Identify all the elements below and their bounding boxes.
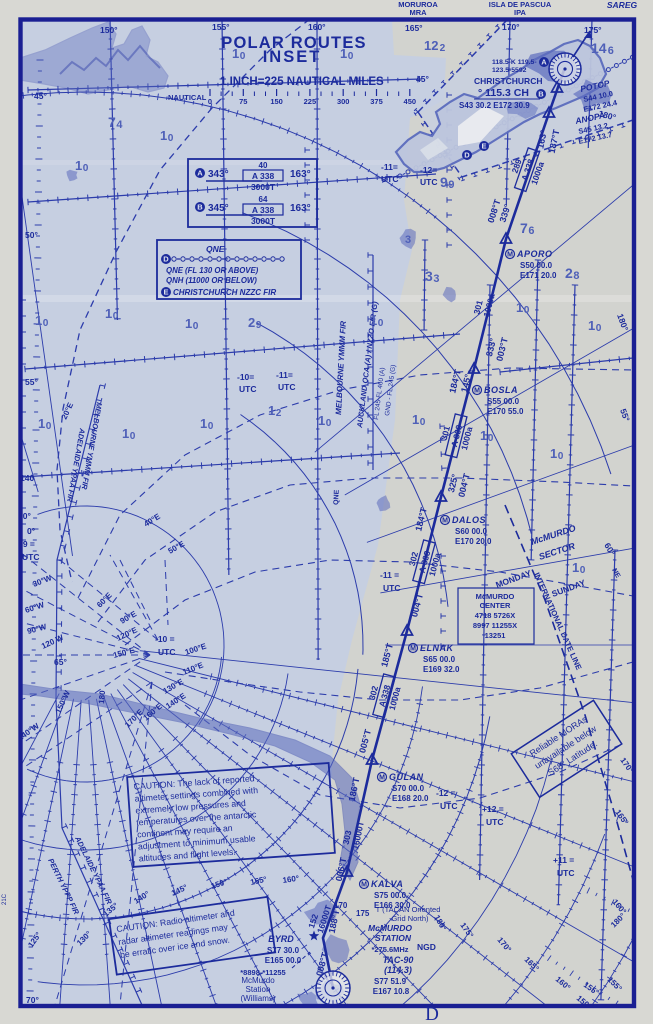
svg-text:175°: 175°	[584, 25, 602, 35]
svg-text:64: 64	[259, 195, 268, 204]
svg-text:225: 225	[304, 97, 317, 106]
svg-text:UTC: UTC	[557, 868, 574, 878]
svg-text:+12 =: +12 =	[482, 804, 504, 814]
svg-text:163°: 163°	[290, 203, 311, 214]
svg-text:E171 20.0: E171 20.0	[520, 271, 557, 280]
svg-text:DALOS: DALOS	[452, 515, 486, 525]
svg-text:45°: 45°	[416, 74, 429, 84]
svg-text:E167 10.8: E167 10.8	[373, 987, 410, 996]
svg-text:S77 51.9: S77 51.9	[374, 977, 407, 986]
svg-text:0°: 0°	[27, 526, 36, 536]
svg-text:B: B	[538, 90, 544, 99]
svg-text:1: 1	[550, 446, 557, 461]
svg-text:0: 0	[113, 311, 119, 322]
svg-text:75: 75	[239, 97, 247, 106]
svg-text:1: 1	[200, 416, 207, 431]
svg-text:45°: 45°	[34, 91, 47, 101]
svg-text:3000T: 3000T	[251, 182, 276, 192]
svg-text:9: 9	[448, 179, 454, 191]
svg-text:A 338: A 338	[252, 171, 275, 181]
svg-text:1: 1	[268, 403, 275, 418]
svg-text:0: 0	[83, 163, 89, 174]
svg-text:0: 0	[208, 97, 212, 106]
svg-text:S55 00.0: S55 00.0	[487, 397, 520, 406]
svg-text:-10=: -10=	[237, 372, 254, 382]
svg-text:STATION: STATION	[375, 933, 412, 943]
svg-text:M: M	[474, 388, 480, 395]
svg-text:E169 32.0: E169 32.0	[423, 665, 460, 674]
svg-text:1: 1	[75, 158, 82, 173]
svg-text:0: 0	[420, 417, 426, 428]
svg-text:0: 0	[43, 318, 49, 329]
svg-text:118.5-K 119.5-: 118.5-K 119.5-	[492, 59, 537, 66]
svg-text:450: 450	[404, 97, 417, 106]
svg-text:3: 3	[425, 268, 433, 284]
svg-text:BYRD: BYRD	[268, 934, 294, 944]
svg-text:E: E	[163, 288, 168, 297]
svg-text:160°: 160°	[308, 22, 326, 32]
svg-text:UTC: UTC	[158, 647, 175, 657]
svg-text:M: M	[410, 646, 416, 653]
svg-text:1: 1	[572, 560, 579, 575]
svg-text:(114.3): (114.3)	[384, 965, 412, 975]
svg-text:0: 0	[378, 318, 384, 329]
svg-text:1: 1	[480, 428, 487, 443]
svg-text:14: 14	[591, 40, 607, 56]
svg-text:QNE: QNE	[206, 244, 225, 254]
svg-text:M: M	[507, 252, 513, 259]
svg-text:S77 30.0: S77 30.0	[267, 946, 300, 955]
svg-text:UTC: UTC	[383, 583, 400, 593]
svg-text:T (TACAN Oriented: T (TACAN Oriented	[376, 905, 441, 914]
svg-text:M: M	[442, 518, 448, 525]
svg-text:9: 9	[256, 320, 262, 331]
svg-text:65°: 65°	[54, 657, 67, 667]
svg-text:13251: 13251	[485, 631, 506, 640]
svg-text:QNH (11000 OR BELOW): QNH (11000 OR BELOW)	[166, 276, 257, 285]
svg-text:UTC: UTC	[278, 382, 295, 392]
svg-text:E170 55.0: E170 55.0	[487, 407, 524, 416]
svg-text:3000T: 3000T	[251, 216, 276, 226]
svg-text:0: 0	[240, 51, 246, 62]
svg-text:1: 1	[35, 313, 42, 328]
svg-text:-12 =: -12 =	[436, 788, 456, 798]
svg-text:QNE (FL 130 OR ABOVE): QNE (FL 130 OR ABOVE)	[166, 266, 259, 275]
svg-text:0: 0	[488, 433, 494, 444]
svg-text:0: 0	[348, 51, 354, 62]
svg-text:163°: 163°	[290, 169, 311, 180]
svg-text:S70 00.0: S70 00.0	[392, 784, 425, 793]
svg-text:E165 00.0: E165 00.0	[265, 956, 302, 965]
svg-text:1: 1	[370, 313, 377, 328]
svg-text:A: A	[197, 169, 203, 178]
svg-text:1: 1	[412, 412, 419, 427]
svg-text:1: 1	[185, 316, 192, 331]
svg-text:APORO: APORO	[516, 249, 553, 259]
svg-text:UTC: UTC	[22, 552, 39, 562]
svg-text:MRA: MRA	[409, 8, 427, 17]
svg-text:CHRISTCHURCH NZZC FIR: CHRISTCHURCH NZZC FIR	[173, 288, 276, 297]
svg-text:170°: 170°	[502, 22, 520, 32]
svg-text:180: 180	[97, 690, 107, 705]
svg-text:1: 1	[516, 300, 523, 315]
svg-text:A: A	[541, 58, 547, 67]
svg-text:70°: 70°	[26, 995, 39, 1005]
svg-text:McMURDO: McMURDO	[368, 923, 412, 933]
svg-text:55°: 55°	[25, 377, 38, 387]
svg-text:BOSLA: BOSLA	[484, 385, 518, 395]
svg-text:1: 1	[588, 318, 595, 333]
svg-text:E168 20.0: E168 20.0	[392, 794, 429, 803]
svg-text:0: 0	[193, 321, 199, 332]
svg-text:McMurdo: McMurdo	[241, 976, 275, 985]
svg-text:345°: 345°	[208, 203, 229, 214]
svg-text:343°: 343°	[208, 169, 229, 180]
svg-text:0: 0	[558, 451, 564, 462]
svg-text:-11=: -11=	[381, 162, 398, 172]
svg-text:NGD: NGD	[417, 942, 436, 952]
svg-text:-11=: -11=	[276, 370, 293, 380]
svg-text:175: 175	[356, 909, 370, 918]
svg-text:3: 3	[405, 234, 411, 246]
svg-text:4: 4	[116, 119, 122, 131]
svg-text:-12=: -12=	[420, 165, 437, 175]
svg-text:1: 1	[105, 306, 112, 321]
svg-text:0: 0	[326, 418, 332, 429]
svg-text:S65 00.0: S65 00.0	[423, 655, 456, 664]
svg-text:1 INCH=225 NAUTICAL MILES: 1 INCH=225 NAUTICAL MILES	[220, 76, 384, 88]
svg-text:1: 1	[318, 413, 325, 428]
svg-text:3: 3	[433, 273, 439, 285]
svg-text:7: 7	[520, 220, 528, 236]
svg-text:Station: Station	[246, 985, 271, 994]
svg-text:INSET: INSET	[263, 48, 322, 66]
svg-text:UTC: UTC	[381, 174, 398, 184]
svg-text:UTC: UTC	[486, 817, 503, 827]
svg-text:155°: 155°	[212, 22, 230, 32]
svg-text:*275.6MHz: *275.6MHz	[371, 945, 408, 954]
svg-text:KALVA: KALVA	[371, 879, 403, 889]
svg-text:150: 150	[270, 97, 283, 106]
svg-text:S60 00.0: S60 00.0	[455, 527, 488, 536]
svg-text:375: 375	[370, 97, 383, 106]
svg-text:170: 170	[334, 901, 348, 910]
svg-text:B: B	[197, 203, 203, 212]
svg-text:0: 0	[46, 421, 52, 432]
svg-text:+11 =: +11 =	[553, 855, 574, 865]
svg-text:0: 0	[168, 133, 174, 144]
svg-text:CHRISTCHURCH: CHRISTCHURCH	[474, 76, 542, 86]
svg-text:1: 1	[38, 416, 45, 431]
svg-text:SAREG: SAREG	[607, 0, 638, 10]
svg-text:UTC: UTC	[239, 384, 256, 394]
svg-text:7: 7	[108, 114, 116, 130]
svg-text:S75 00.0: S75 00.0	[374, 891, 407, 900]
svg-text:UTC: UTC	[440, 801, 457, 811]
svg-text:4718 5726X: 4718 5726X	[475, 611, 515, 620]
svg-text:D: D	[464, 151, 470, 160]
svg-text:40: 40	[259, 161, 268, 170]
svg-text:M: M	[361, 882, 367, 889]
svg-text:1: 1	[122, 426, 129, 441]
svg-text:1: 1	[160, 128, 167, 143]
svg-text:0: 0	[524, 305, 530, 316]
svg-text:0: 0	[580, 565, 586, 576]
svg-text:6: 6	[608, 45, 614, 57]
svg-text:123.5-5592: 123.5-5592	[492, 67, 527, 74]
svg-text:165°: 165°	[405, 23, 423, 33]
svg-text:2: 2	[565, 265, 573, 281]
svg-text:S43 30.2 E172 30.9: S43 30.2 E172 30.9	[459, 101, 530, 110]
svg-text:150°: 150°	[100, 25, 118, 35]
svg-text:McMURDO: McMURDO	[476, 592, 515, 601]
svg-text:-10 =: -10 =	[155, 634, 175, 644]
svg-text:2: 2	[248, 315, 255, 330]
svg-text:6: 6	[528, 225, 534, 237]
svg-text:300: 300	[337, 97, 350, 106]
svg-text:0: 0	[130, 431, 136, 442]
svg-text:-11 =: -11 =	[380, 570, 399, 580]
svg-text:TAC-90: TAC-90	[383, 955, 414, 965]
svg-text:Grid North): Grid North)	[391, 914, 429, 923]
svg-text:D: D	[163, 255, 169, 264]
svg-text:E: E	[481, 142, 486, 151]
svg-text:CENTER: CENTER	[480, 601, 511, 610]
svg-text:9: 9	[440, 174, 448, 190]
svg-text:D: D	[425, 1004, 439, 1024]
svg-text:A 338: A 338	[252, 205, 275, 215]
svg-text:50°: 50°	[25, 230, 38, 240]
svg-text:(Williams): (Williams)	[240, 994, 275, 1003]
svg-text:8997 11255X: 8997 11255X	[473, 621, 517, 630]
svg-text:NAUTICAL: NAUTICAL	[168, 93, 207, 102]
svg-text:UTC: UTC	[420, 177, 437, 187]
svg-text:0: 0	[208, 421, 214, 432]
svg-text:IPA: IPA	[514, 8, 527, 17]
svg-text:8: 8	[573, 270, 579, 282]
svg-text:S50 00.0: S50 00.0	[520, 261, 553, 270]
svg-text:GULAN: GULAN	[389, 772, 424, 782]
svg-text:E170 20.0: E170 20.0	[455, 537, 492, 546]
svg-text:ELNAK: ELNAK	[420, 643, 454, 653]
svg-text:2: 2	[440, 43, 446, 54]
svg-text:° 115.3 CH: ° 115.3 CH	[478, 87, 529, 99]
svg-text:0: 0	[596, 323, 602, 334]
svg-text:12: 12	[424, 38, 438, 53]
svg-text:21C: 21C	[2, 893, 8, 905]
svg-text:2: 2	[276, 408, 282, 419]
svg-text:M: M	[379, 775, 385, 782]
svg-text:QNE: QNE	[333, 489, 341, 505]
